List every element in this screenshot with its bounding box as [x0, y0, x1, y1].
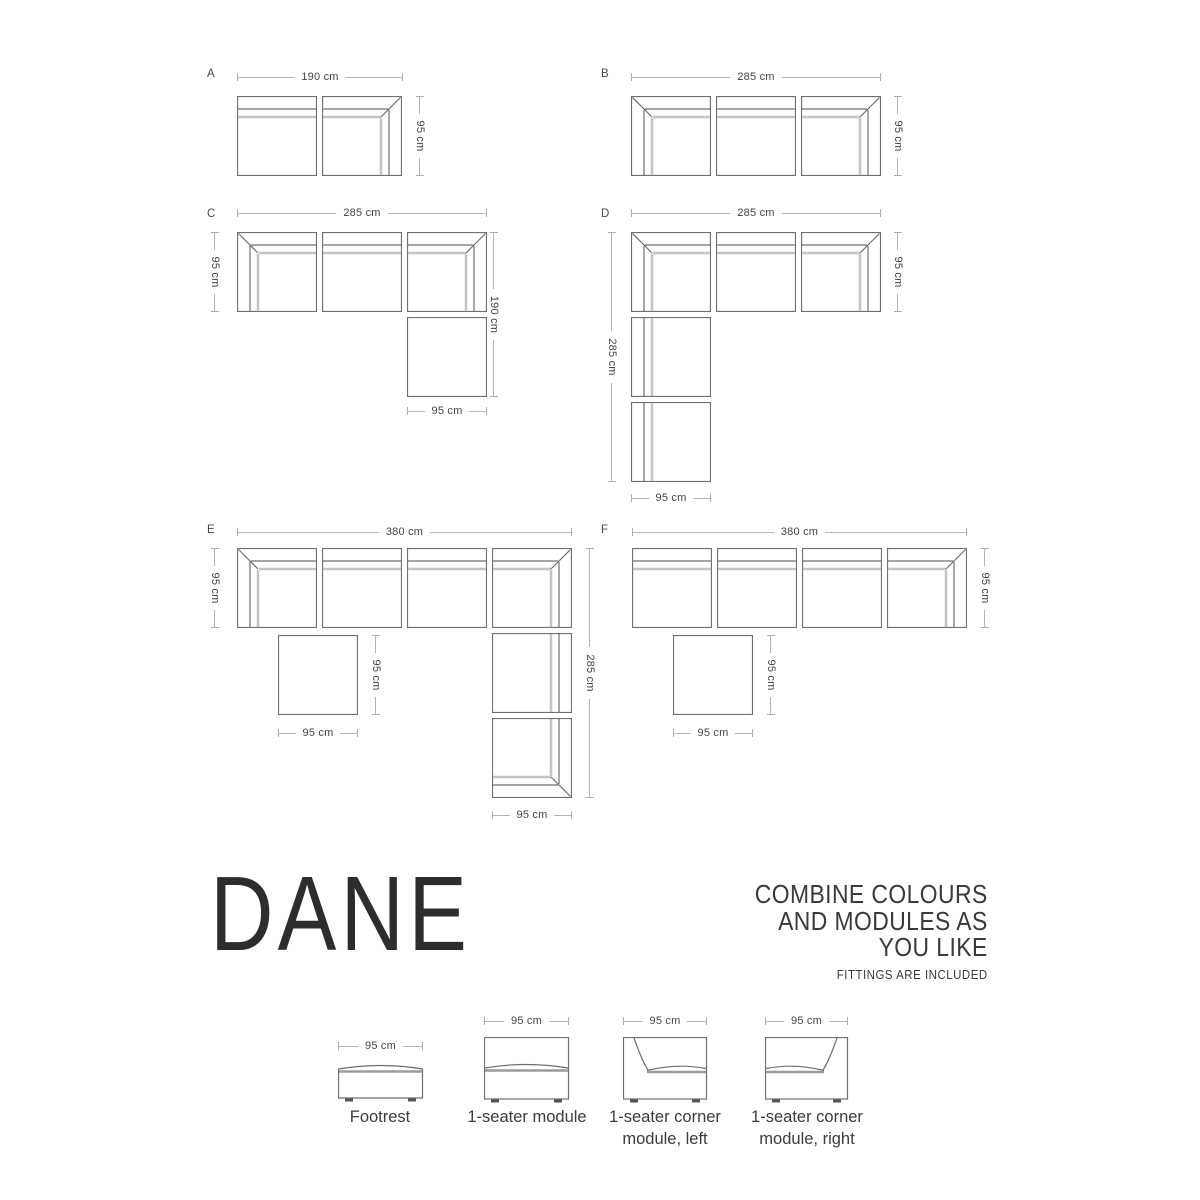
dim-tick [752, 729, 753, 737]
dim-line [420, 158, 421, 175]
dim-line [612, 233, 613, 331]
dim-line [829, 1021, 847, 1022]
dimension-v-layout-D: 285 cm [605, 232, 619, 482]
layout-E-label: E [207, 524, 215, 536]
dim-line [403, 1046, 422, 1047]
dim-tick [571, 811, 572, 819]
dim-line [674, 733, 691, 734]
dim-tick [880, 209, 881, 217]
dim-label: 95 cm [791, 1015, 822, 1027]
dimension-h-layout-B: 285 cm [631, 70, 881, 84]
module-seat-left-plan [631, 402, 711, 482]
module-corner-tr-plan [801, 232, 881, 312]
dim-tick [706, 1017, 707, 1025]
dim-line [376, 636, 377, 653]
dimension-v-layout-C: 95 cm [208, 232, 222, 312]
dim-label: 95 cm [892, 257, 904, 288]
dim-label: 95 cm [511, 1015, 542, 1027]
dim-label: 95 cm [698, 727, 729, 739]
module-corner-tr-plan [492, 548, 572, 628]
module-corner-tr-plan [887, 548, 967, 628]
dim-line [624, 1021, 643, 1022]
dim-label: 95 cm [892, 121, 904, 152]
dim-tick [981, 627, 989, 628]
catalog-label-line: 1-seater corner [697, 1106, 917, 1128]
dim-line [985, 549, 986, 566]
dim-line [590, 699, 591, 797]
dim-line [612, 383, 613, 481]
layout-F-label: F [601, 524, 609, 536]
dim-tick [767, 714, 775, 715]
module-corner-tl-plan [237, 548, 317, 628]
dim-line [782, 213, 880, 214]
dim-label: 95 cm [209, 573, 221, 604]
dim-label: 285 cm [584, 654, 596, 691]
dim-line [215, 233, 216, 250]
catalog-label-line: module, right [697, 1128, 917, 1150]
dim-tick [357, 729, 358, 737]
module-seat-top-plan [717, 548, 797, 628]
dim-label: 190 cm [488, 296, 500, 333]
layout-D-label: D [601, 208, 610, 220]
dimension-v-layout-C: 190 cm [487, 232, 501, 397]
module-seat-left-plan [631, 317, 711, 397]
dim-label: 95 cm [517, 809, 548, 821]
dimension-h-layout-A: 190 cm [237, 70, 403, 84]
dim-tick [416, 175, 424, 176]
dim-label: 95 cm [414, 121, 426, 152]
tagline: COMBINE COLOURS AND MODULES AS YOU LIKE … [755, 881, 988, 982]
dim-tick [372, 714, 380, 715]
dimension-v-layout-D: 95 cm [891, 232, 905, 312]
dim-tick [568, 1017, 569, 1025]
dim-line [215, 549, 216, 566]
dim-line [632, 213, 730, 214]
dim-line [633, 532, 774, 533]
dim-line [693, 498, 710, 499]
module-seat-top-plan [237, 96, 317, 176]
dim-line [771, 636, 772, 653]
dim-tick [211, 627, 219, 628]
module-seat-top-plan [407, 548, 487, 628]
dimension-h-layout-C: 95 cm [407, 404, 487, 418]
dimension-undefined-catalog-corner-right: 95 cm [765, 1014, 848, 1028]
dim-line [339, 1046, 358, 1047]
module-seat-top-plan [802, 548, 882, 628]
dimension-h-layout-E: 95 cm [492, 808, 572, 822]
tagline-line-2: AND MODULES AS [755, 908, 988, 935]
dim-line [346, 77, 402, 78]
dim-label: 95 cm [979, 573, 991, 604]
dim-label: 380 cm [386, 526, 423, 538]
dim-line [420, 97, 421, 114]
dimension-h-layout-D: 95 cm [631, 491, 711, 505]
dim-label: 285 cm [343, 207, 380, 219]
dimension-v-layout-F: 95 cm [978, 548, 992, 628]
dim-tick [608, 481, 616, 482]
dimension-h-layout-F: 380 cm [632, 525, 967, 539]
dimension-v-layout-E: 95 cm [208, 548, 222, 628]
dim-line [408, 411, 425, 412]
dim-line [430, 532, 571, 533]
dimension-h-layout-E: 95 cm [278, 726, 358, 740]
module-corner-tr-plan [322, 96, 402, 176]
dimension-v-layout-B: 95 cm [891, 96, 905, 176]
dim-line [590, 549, 591, 647]
dim-tick [894, 175, 902, 176]
layout-C-label: C [207, 208, 216, 220]
module-corner-tr-plan [801, 96, 881, 176]
dim-line [985, 610, 986, 627]
dim-label: 95 cm [656, 492, 687, 504]
module-corner-tr-plan [407, 232, 487, 312]
module-corner-tl-plan [237, 232, 317, 312]
dim-line [632, 498, 649, 499]
catalog-drawing-corner-left [623, 1037, 708, 1105]
dim-line [279, 733, 296, 734]
dim-line [493, 815, 510, 816]
dim-line [898, 233, 899, 250]
module-footrest-plan [278, 635, 358, 715]
dim-tick [894, 311, 902, 312]
dim-line [771, 697, 772, 714]
module-corner-tl-plan [631, 96, 711, 176]
dim-line [485, 1021, 504, 1022]
module-seat-top-plan [322, 232, 402, 312]
dim-tick [571, 528, 572, 536]
module-seat-right-plan [492, 633, 572, 713]
dim-line [549, 1021, 568, 1022]
dim-line [340, 733, 357, 734]
dimension-undefined-catalog-corner-left: 95 cm [623, 1014, 707, 1028]
dim-line [687, 1021, 706, 1022]
layout-B-label: B [601, 68, 609, 80]
dim-tick [490, 396, 498, 397]
dimension-h-layout-C: 285 cm [237, 206, 487, 220]
dim-label: 285 cm [606, 338, 618, 375]
tagline-note: FITTINGS ARE INCLUDED [755, 967, 988, 982]
dim-line [494, 233, 495, 289]
module-configuration-sheet: DANE COMBINE COLOURS AND MODULES AS YOU … [0, 0, 1200, 1200]
catalog-drawing-footrest [338, 1060, 424, 1104]
module-footrest-plan [407, 317, 487, 397]
dim-line [898, 97, 899, 114]
tagline-line-1: COMBINE COLOURS [755, 881, 988, 908]
dim-line [469, 411, 486, 412]
dim-line [388, 213, 486, 214]
dim-tick [847, 1017, 848, 1025]
dim-tick [402, 73, 403, 81]
dim-line [376, 697, 377, 714]
dim-label: 95 cm [765, 660, 777, 691]
dim-tick [211, 311, 219, 312]
dim-label: 95 cm [650, 1015, 681, 1027]
dim-tick [422, 1042, 423, 1050]
module-corner-br-plan [492, 718, 572, 798]
dim-label: 95 cm [432, 405, 463, 417]
dim-label: 95 cm [209, 257, 221, 288]
catalog-label-corner-right: 1-seater cornermodule, right [697, 1106, 917, 1150]
dimension-v-layout-E: 95 cm [369, 635, 383, 715]
dim-line [215, 610, 216, 627]
dim-line [238, 77, 294, 78]
brand-title: DANE [210, 860, 471, 968]
dim-tick [710, 494, 711, 502]
dimension-h-layout-E: 380 cm [237, 525, 572, 539]
dim-line [898, 158, 899, 175]
dim-tick [486, 407, 487, 415]
catalog-drawing-corner-right [765, 1037, 849, 1105]
dim-label: 285 cm [737, 71, 774, 83]
dim-line [215, 294, 216, 311]
dim-line [782, 77, 880, 78]
dim-tick [486, 209, 487, 217]
dim-line [554, 815, 571, 816]
dimension-h-layout-D: 285 cm [631, 206, 881, 220]
module-seat-top-plan [716, 232, 796, 312]
dimension-v-layout-E: 285 cm [583, 548, 597, 798]
dim-tick [586, 797, 594, 798]
dimension-undefined-catalog-seater: 95 cm [484, 1014, 569, 1028]
module-seat-top-plan [632, 548, 712, 628]
dim-line [632, 77, 730, 78]
dim-line [735, 733, 752, 734]
dim-line [238, 532, 379, 533]
dim-line [238, 213, 336, 214]
tagline-line-3: YOU LIKE [755, 934, 988, 961]
dimension-h-layout-F: 95 cm [673, 726, 753, 740]
dimension-v-layout-A: 95 cm [413, 96, 427, 176]
module-corner-tl-plan [631, 232, 711, 312]
module-seat-top-plan [716, 96, 796, 176]
dim-tick [966, 528, 967, 536]
dim-label: 285 cm [737, 207, 774, 219]
dim-label: 95 cm [303, 727, 334, 739]
layout-A-label: A [207, 68, 215, 80]
dim-line [766, 1021, 784, 1022]
dim-label: 95 cm [365, 1040, 396, 1052]
dimension-v-layout-F: 95 cm [764, 635, 778, 715]
dim-line [494, 340, 495, 396]
dimension-undefined-catalog-footrest: 95 cm [338, 1039, 423, 1053]
dim-tick [880, 73, 881, 81]
dim-line [825, 532, 966, 533]
catalog-drawing-seater [484, 1037, 570, 1105]
dim-label: 95 cm [370, 660, 382, 691]
module-footrest-plan [673, 635, 753, 715]
dim-line [898, 294, 899, 311]
dim-label: 380 cm [781, 526, 818, 538]
dim-label: 190 cm [301, 71, 338, 83]
module-seat-top-plan [322, 548, 402, 628]
